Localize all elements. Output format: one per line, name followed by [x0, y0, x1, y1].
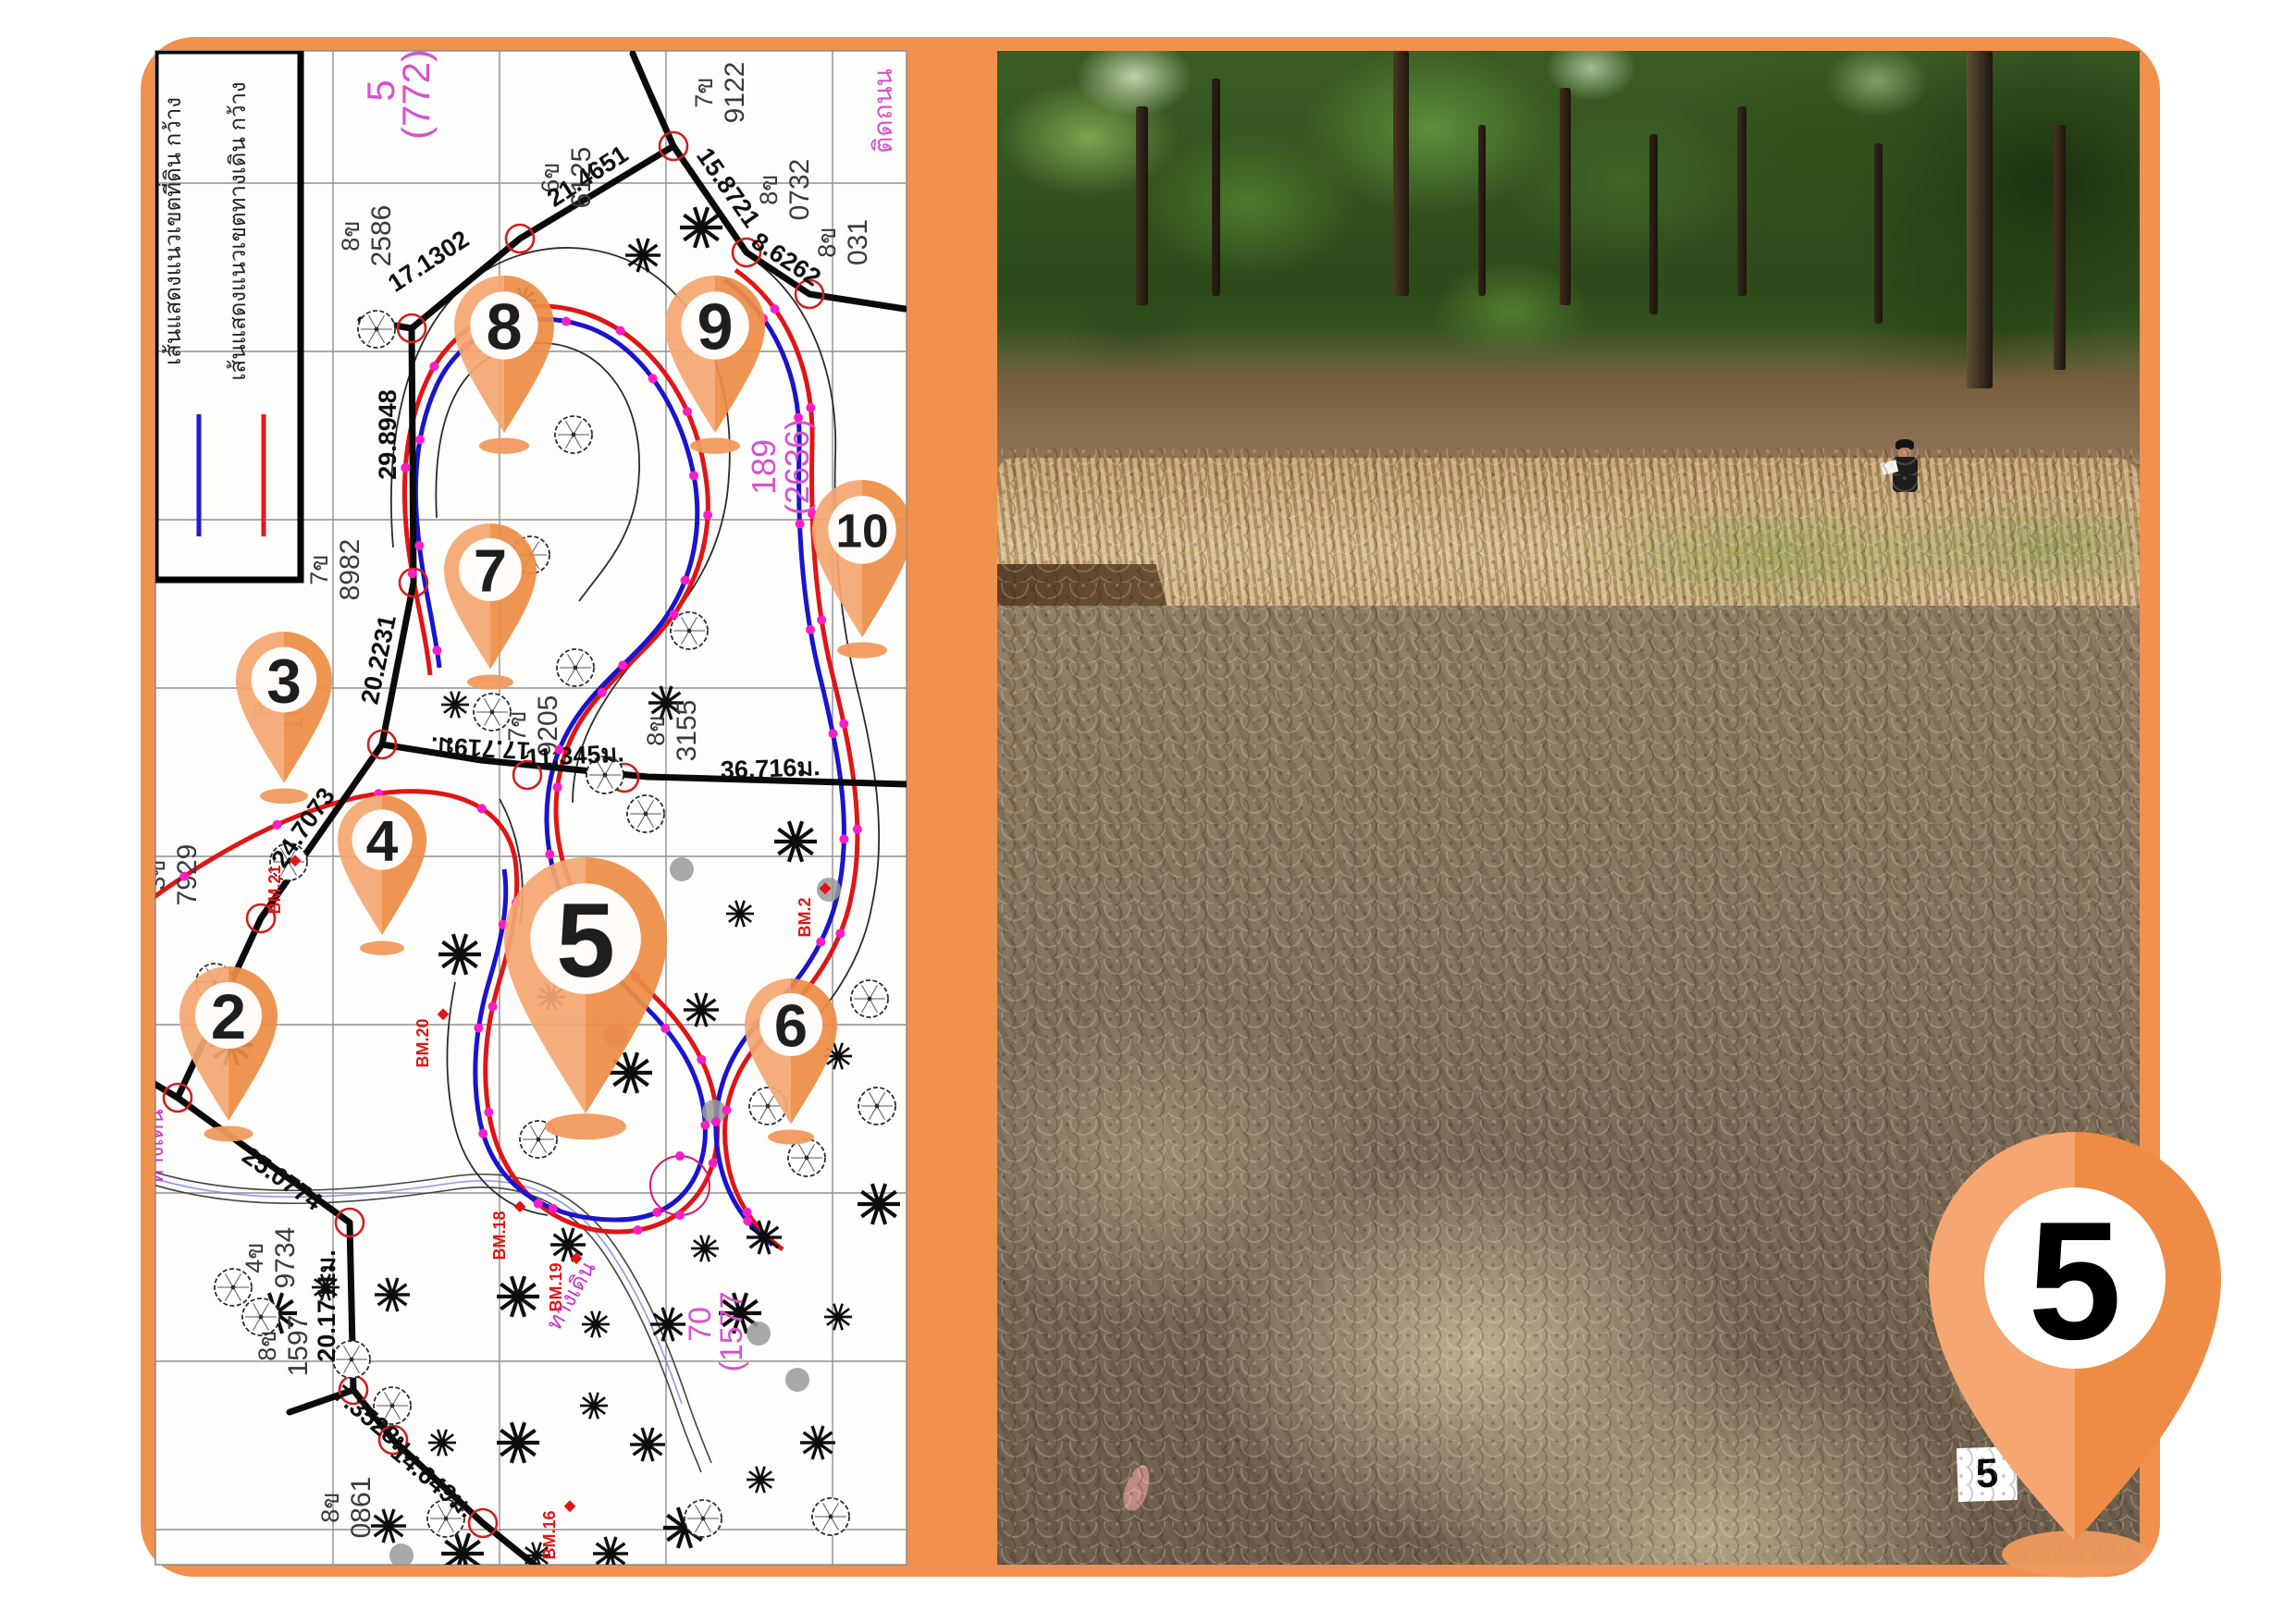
map-label: (1577	[714, 1292, 749, 1372]
contour-node	[794, 413, 803, 423]
contour-node	[816, 938, 825, 947]
tree-symbol-bush	[358, 311, 395, 348]
map-label: BM.2	[796, 897, 814, 937]
svg-text:3155: 3155	[672, 700, 702, 762]
contour-node	[853, 825, 862, 834]
contour-node	[722, 1105, 732, 1114]
pin-shadow	[479, 437, 529, 453]
contour-node	[689, 471, 698, 480]
map-label: BM.20	[414, 1018, 432, 1067]
map-label: 70	[683, 1307, 718, 1342]
contour-node	[796, 519, 805, 528]
contour-node	[414, 541, 424, 550]
pin-shadow	[690, 437, 740, 453]
pin-shadow	[467, 675, 513, 690]
contour-node	[432, 646, 441, 655]
svg-text:9734: 9734	[270, 1227, 301, 1289]
svg-text:7: 7	[474, 536, 507, 604]
map-label: ทางเดิน	[143, 1109, 168, 1184]
parcel-label: 3ข7929	[142, 844, 203, 906]
tree-symbol-bush	[685, 1500, 722, 1537]
contour-node	[697, 1055, 706, 1064]
svg-text:4: 4	[366, 809, 399, 873]
contour-node	[555, 745, 564, 755]
svg-text:2586: 2586	[366, 205, 397, 267]
map-label: 36.716ม.	[720, 753, 821, 784]
contour-node	[770, 304, 779, 314]
tree-symbol-bush	[858, 1088, 895, 1125]
contour-node	[478, 1129, 488, 1138]
map-label: 29.8948	[374, 389, 401, 480]
contour-node	[806, 403, 815, 412]
map-label: 11.345ม.	[525, 739, 625, 772]
map-label: ติดถนน	[869, 68, 897, 154]
tree-symbol-gray	[389, 1543, 414, 1568]
tree-symbol-bush	[851, 980, 888, 1017]
tree-symbol-bush	[555, 416, 592, 453]
map-label: BM.18	[490, 1211, 509, 1260]
map-pin-5[interactable]: 5	[1929, 1132, 2221, 1541]
contour-node	[408, 569, 417, 578]
svg-text:4ข: 4ข	[241, 1242, 268, 1273]
tree-symbol-gray	[747, 1322, 771, 1346]
svg-text:5: 5	[556, 881, 615, 1000]
contour-node	[477, 804, 487, 813]
tree-symbol-bush	[812, 1498, 849, 1535]
svg-text:8ข: 8ข	[813, 227, 841, 257]
map-label: เส้นแสดงแนวเขตที่ดิน กว้าง	[157, 97, 186, 365]
map-label: (2636)	[778, 419, 816, 515]
svg-text:9: 9	[697, 289, 733, 363]
contour-node	[660, 1024, 670, 1033]
contour-node	[534, 1199, 543, 1209]
svg-text:0732: 0732	[784, 159, 815, 221]
svg-text:1597: 1597	[283, 1315, 314, 1377]
contour-node	[683, 407, 692, 416]
pin-shadow	[360, 941, 404, 955]
map-label: 20.1711ม.	[313, 1249, 340, 1361]
svg-text:031: 031	[843, 219, 873, 265]
contour-node	[743, 1208, 752, 1217]
contour-node	[549, 1204, 558, 1213]
contour-node	[616, 326, 625, 335]
tree-symbol-bush	[788, 1139, 825, 1176]
svg-text:8: 8	[486, 289, 522, 363]
tree-symbol-bush	[557, 649, 594, 686]
contour-node	[681, 576, 690, 585]
tree-symbol-bush	[242, 1298, 279, 1335]
contour-node	[415, 435, 425, 444]
svg-text:8ข: 8ข	[642, 715, 670, 745]
svg-text:8ข: 8ข	[253, 1330, 281, 1360]
contour-node	[675, 1151, 685, 1161]
contour-node	[675, 1211, 685, 1220]
contour-node	[828, 729, 837, 738]
svg-text:2: 2	[211, 981, 246, 1052]
contour-node	[700, 1121, 710, 1130]
tree-symbol-gray	[670, 857, 694, 881]
map-label: (772)	[394, 49, 438, 140]
contour-node	[618, 660, 627, 670]
map-label: BM.16	[540, 1510, 559, 1559]
tree-symbol-gray	[785, 1368, 809, 1392]
pin-shadow	[768, 1130, 814, 1145]
contour-node	[743, 1216, 752, 1225]
contour-node	[711, 1117, 721, 1126]
contour-node	[401, 463, 410, 473]
contour-node	[806, 625, 815, 634]
pin-shadow	[260, 788, 308, 804]
pin-shadow	[837, 642, 887, 658]
svg-text:0861: 0861	[346, 1477, 376, 1539]
svg-text:10: 10	[835, 504, 888, 557]
contour-node	[835, 928, 845, 938]
svg-text:7ข: 7ข	[690, 77, 718, 107]
svg-text:8ข: 8ข	[337, 220, 364, 251]
contour-node	[553, 782, 562, 792]
contour-node	[634, 1225, 643, 1235]
svg-text:8ข: 8ข	[316, 1492, 344, 1522]
contour-node	[648, 374, 658, 383]
contour-node	[709, 1159, 718, 1168]
pin-shadow	[545, 1113, 626, 1139]
contour-node	[652, 1208, 661, 1217]
svg-text:6: 6	[774, 991, 808, 1059]
contour-node	[429, 362, 438, 371]
tree-symbol-bush	[215, 1269, 252, 1306]
map-label: เส้นแสดงแนวเขตทางเดิน กว้าง	[226, 81, 251, 380]
contour-node	[670, 609, 679, 619]
contour-node	[545, 850, 554, 859]
svg-text:8982: 8982	[335, 539, 365, 601]
svg-text:7ข: 7ข	[305, 554, 333, 584]
contour-node	[474, 1024, 483, 1033]
contour-node	[839, 834, 848, 843]
map-label: BM.21	[265, 865, 284, 914]
pin-shadow	[204, 1125, 253, 1141]
contour-node	[484, 1108, 493, 1117]
contour-node	[839, 719, 848, 729]
contour-node	[179, 872, 189, 881]
tree-symbol-bush	[627, 795, 664, 832]
svg-text:9122: 9122	[720, 62, 750, 124]
contour-node	[488, 1002, 498, 1011]
contour-node	[562, 317, 571, 326]
contour-node	[703, 510, 712, 520]
svg-text:8ข: 8ข	[755, 174, 783, 204]
svg-text:3ข: 3ข	[142, 859, 170, 890]
map-label: 189	[745, 439, 783, 495]
svg-text:3: 3	[266, 646, 302, 716]
contour-node	[273, 820, 282, 830]
survey-map-overlay: เส้นแสดงแนวเขตที่ดิน กว้างเส้นแสดงแนวเขต…	[0, 0, 2296, 1623]
map-label: 17.719ม.	[430, 732, 531, 765]
contour-node	[817, 615, 826, 624]
svg-text:5: 5	[2028, 1187, 2121, 1374]
contour-node	[598, 688, 607, 697]
